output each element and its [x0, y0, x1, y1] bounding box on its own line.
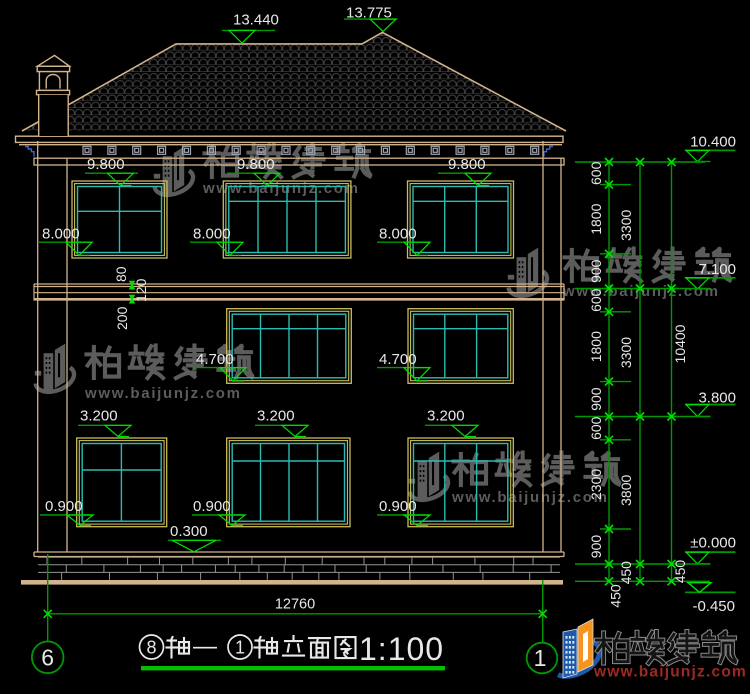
svg-text:0.900: 0.900: [379, 498, 417, 515]
svg-text:7.100: 7.100: [698, 261, 736, 278]
svg-text:450: 450: [672, 560, 688, 584]
svg-text:4.700: 4.700: [379, 351, 417, 368]
svg-text:6: 6: [41, 645, 54, 671]
svg-text:10.400: 10.400: [690, 134, 736, 151]
svg-text:3.200: 3.200: [427, 408, 465, 425]
svg-text:600: 600: [588, 161, 604, 185]
svg-text:200: 200: [114, 306, 130, 330]
svg-text:0.900: 0.900: [45, 498, 83, 515]
svg-text:1:100: 1:100: [359, 631, 444, 667]
svg-text:1800: 1800: [588, 331, 604, 362]
svg-text:www.baijunjz.com: www.baijunjz.com: [593, 664, 747, 681]
svg-text:0.300: 0.300: [170, 523, 208, 540]
svg-text:9.800: 9.800: [448, 156, 486, 173]
svg-text:8.000: 8.000: [379, 226, 417, 243]
svg-text:13.440: 13.440: [233, 12, 279, 29]
svg-text:900: 900: [588, 535, 604, 559]
svg-text:www.baijunjz.com: www.baijunjz.com: [562, 283, 720, 300]
svg-text:www.baijunjz.com: www.baijunjz.com: [451, 489, 609, 506]
svg-text:www.baijunjz.com: www.baijunjz.com: [84, 385, 242, 402]
svg-text:3300: 3300: [618, 337, 634, 368]
svg-text:3.200: 3.200: [80, 408, 118, 425]
svg-text:120: 120: [133, 278, 149, 302]
svg-text:—: —: [193, 633, 217, 660]
svg-text:1: 1: [235, 638, 245, 658]
svg-text:12760: 12760: [275, 597, 315, 613]
svg-text:3800: 3800: [618, 475, 634, 506]
svg-text:3.200: 3.200: [257, 408, 295, 425]
svg-text:2300: 2300: [588, 469, 604, 500]
svg-text:9.800: 9.800: [237, 156, 275, 173]
svg-text:600: 600: [588, 416, 604, 440]
svg-text:8.000: 8.000: [42, 226, 80, 243]
svg-text:450: 450: [618, 561, 634, 585]
svg-text:600: 600: [588, 288, 604, 312]
svg-text:0.900: 0.900: [193, 498, 231, 515]
svg-text:4.700: 4.700: [196, 351, 234, 368]
svg-text:±0.000: ±0.000: [690, 535, 736, 552]
svg-text:900: 900: [588, 387, 604, 411]
svg-text:10400: 10400: [672, 324, 688, 363]
svg-text:80: 80: [113, 266, 129, 282]
svg-text:9.800: 9.800: [87, 156, 125, 173]
svg-text:-0.450: -0.450: [692, 598, 735, 615]
svg-text:3300: 3300: [618, 210, 634, 241]
svg-text:1800: 1800: [588, 203, 604, 234]
svg-text:450: 450: [608, 584, 624, 608]
svg-text:900: 900: [588, 259, 604, 283]
svg-text:8: 8: [146, 638, 156, 658]
svg-text:8.000: 8.000: [193, 226, 231, 243]
svg-text:1: 1: [534, 645, 547, 671]
